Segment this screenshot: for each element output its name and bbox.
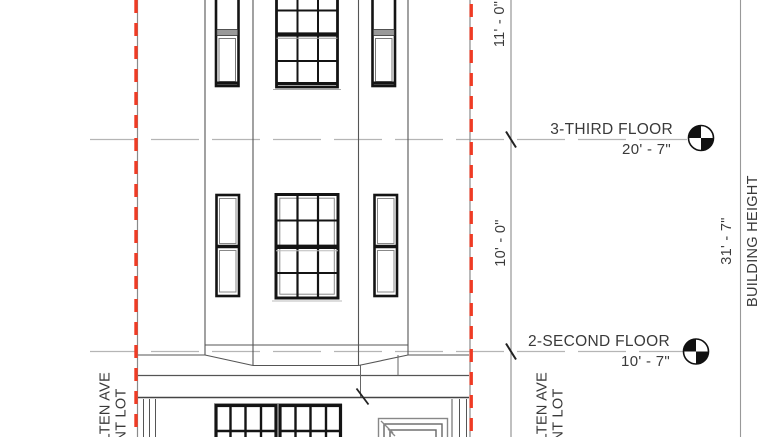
building-edges [138, 0, 471, 437]
level-label-third-floor: 3-THIRD FLOOR [473, 121, 673, 138]
building-height-label: BUILDING HEIGHT [745, 177, 761, 307]
third-floor-windows [216, 0, 395, 90]
facade-lines [138, 0, 469, 398]
adjacent-lot-right-line2: NT LOT [551, 372, 567, 437]
level-elevation-third-floor: 20' - 7" [471, 142, 671, 158]
lot-lines-red [136, 0, 471, 437]
level-marker-third-floor [689, 126, 714, 151]
adjacent-lot-label-right: LTEN AVE NT LOT [536, 372, 567, 437]
second-floor-windows [217, 195, 398, 302]
window [277, 0, 338, 87]
adjacent-lot-left-line1: LTEN AVE [99, 372, 115, 437]
storefront [214, 389, 448, 437]
adjacent-lot-label-left: LTEN AVE NT LOT [99, 372, 130, 437]
storefront-level-tick [357, 389, 369, 405]
entry-door [379, 419, 448, 437]
level-label-second-floor: 2-SECOND FLOOR [470, 333, 670, 350]
level-elevation-second-floor: 10' - 7" [470, 354, 670, 370]
dimension-second-to-third: 10' - 0" [493, 213, 509, 273]
adjacent-lot-left-line2: NT LOT [114, 372, 130, 437]
building-height-value: 31' - 7" [719, 211, 735, 271]
adjacent-lot-right-line1: LTEN AVE [536, 372, 552, 437]
level-marker-second-floor [684, 339, 709, 364]
elevation-drawing: 3-THIRD FLOOR 20' - 7" 2-SECOND FLOOR 10… [0, 0, 777, 437]
dimension-third-to-roof: 11' - 0" [492, 0, 508, 54]
